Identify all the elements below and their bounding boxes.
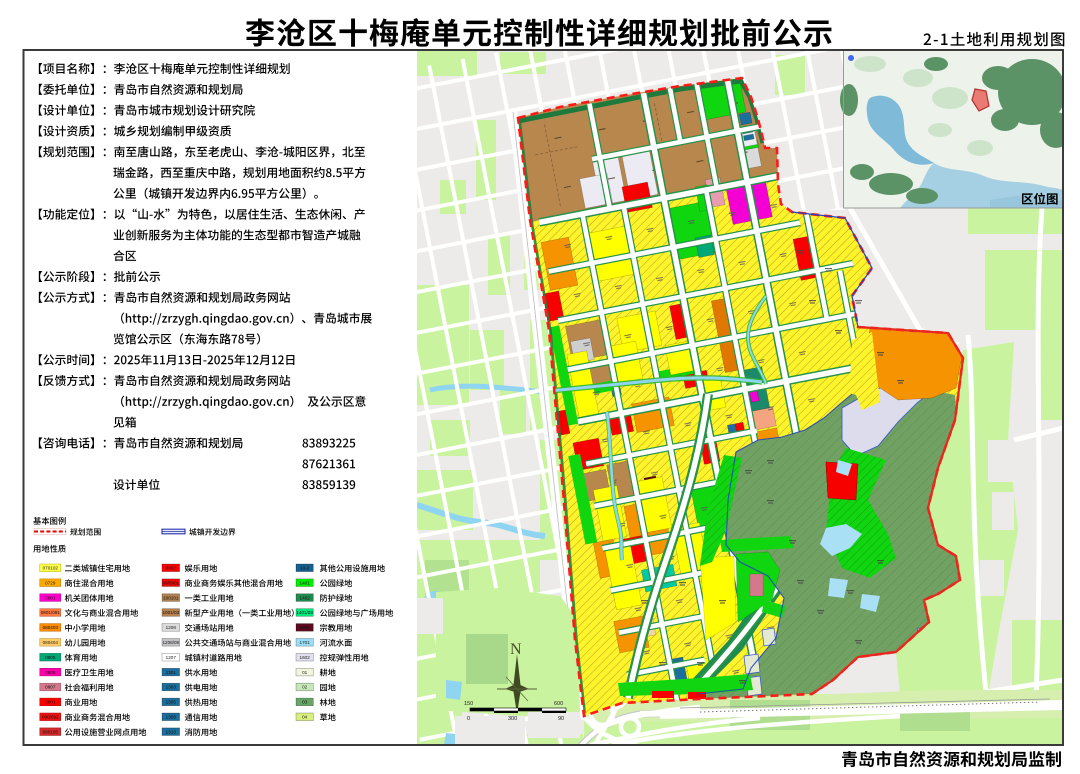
svg-text:0805: 0805 <box>45 655 56 660</box>
svg-text:1313: 1313 <box>166 729 177 734</box>
svg-text:1303: 1303 <box>166 685 177 690</box>
svg-text:02: 02 <box>302 685 308 690</box>
svg-text:0808: 0808 <box>300 625 311 630</box>
svg-text:1401/03: 1401/03 <box>296 610 313 615</box>
svg-text:0801: 0801 <box>45 595 56 600</box>
svg-text:1301: 1301 <box>166 670 177 675</box>
svg-text:1001/03: 1001/03 <box>162 610 179 615</box>
svg-text:1602: 1602 <box>300 655 311 660</box>
svg-text:0801/091: 0801/091 <box>41 610 61 615</box>
svg-text:080404: 080404 <box>43 640 59 645</box>
svg-text:1305: 1305 <box>166 700 177 705</box>
svg-text:070102: 070102 <box>43 566 59 571</box>
svg-text:0807: 0807 <box>45 685 56 690</box>
svg-text:1207: 1207 <box>166 655 177 660</box>
svg-text:090105: 090105 <box>43 729 59 734</box>
svg-text:0903: 0903 <box>166 566 177 571</box>
svg-text:090/092: 090/092 <box>42 715 59 720</box>
svg-text:1701: 1701 <box>300 640 311 645</box>
svg-text:0729: 0729 <box>45 580 56 585</box>
svg-text:03: 03 <box>302 700 308 705</box>
svg-text:13-2: 13-2 <box>300 566 310 571</box>
svg-text:080403: 080403 <box>43 625 59 630</box>
svg-text:100101: 100101 <box>163 595 179 600</box>
svg-text:0806: 0806 <box>45 670 56 675</box>
svg-text:04: 04 <box>302 715 308 720</box>
svg-text:1208: 1208 <box>166 625 177 630</box>
svg-text:1208/09: 1208/09 <box>162 640 179 645</box>
svg-text:01: 01 <box>302 670 308 675</box>
svg-text:0901: 0901 <box>45 700 56 705</box>
svg-text:1401: 1401 <box>300 580 311 585</box>
svg-text:09/0901: 09/0901 <box>162 580 179 585</box>
svg-text:1306: 1306 <box>166 715 177 720</box>
svg-text:1402: 1402 <box>300 595 311 600</box>
